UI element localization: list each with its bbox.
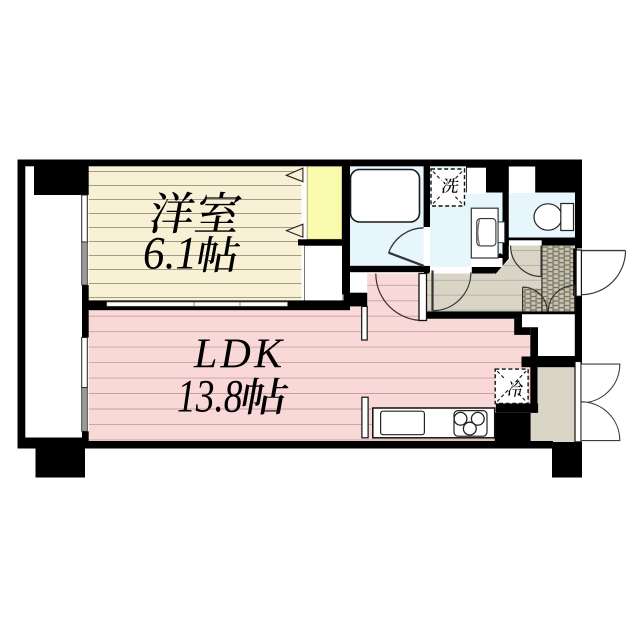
svg-text:6.1: 6.1 xyxy=(143,228,197,280)
svg-text:13.8: 13.8 xyxy=(177,370,243,422)
